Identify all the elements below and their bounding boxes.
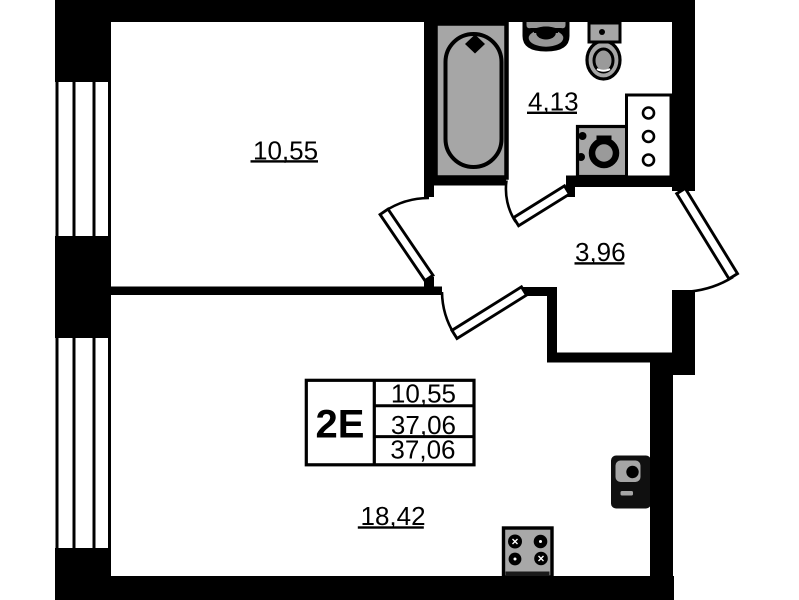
svg-text:2E: 2E (316, 403, 365, 447)
svg-text:37,06: 37,06 (390, 435, 455, 465)
svg-text:10,55: 10,55 (391, 379, 456, 409)
